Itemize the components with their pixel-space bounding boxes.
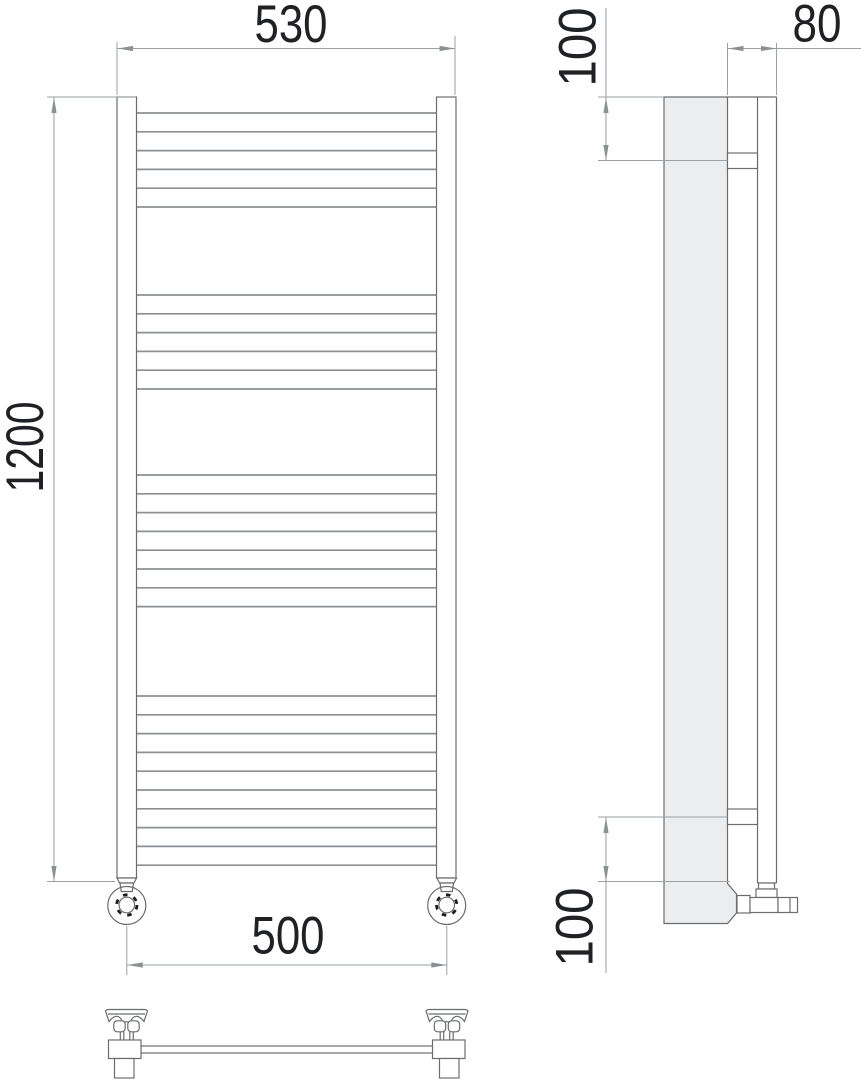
valve-ball-right [128,1021,139,1032]
collector-tube [141,1046,435,1053]
valve-body [750,898,778,913]
valve-ball-left [114,1021,125,1032]
arrow-down [51,866,56,882]
bottom-bracket [728,809,758,825]
dim-100-bottom-label: 100 [546,888,605,967]
arrow-up [51,98,56,114]
front-view [108,97,466,925]
valve-wheel-top [106,1010,148,1022]
technical-drawing: 530 1200 500 80 100 [0,0,861,1080]
arrow-up [603,98,608,114]
top-bracket [728,153,758,169]
valve-connector [737,896,750,914]
dim-1200-label: 1200 [0,402,55,493]
right-foot-valve [428,878,466,925]
left-post [117,97,137,878]
valve-assembly-left [106,1010,148,1079]
dim-100-top-label: 100 [549,8,608,87]
left-foot-valve [108,878,146,925]
dim-side-depth: 80 [728,0,861,95]
dim-front-width-bottom: 500 [127,907,447,976]
side-bottom-valve [737,883,798,913]
arrow-left [118,46,134,51]
side-panel [664,97,737,924]
valve-block [109,1040,142,1059]
valve-joint [756,889,777,898]
dim-front-height: 1200 [0,97,136,882]
right-post [437,97,457,878]
arrow-right [440,46,456,51]
arrow-right [761,46,777,51]
post-end-cap [117,878,137,883]
arrow-up [603,818,608,834]
arrow-left [728,46,744,51]
rung-lines [137,113,437,865]
dim-80-label: 80 [793,0,842,54]
valve-inner-circle [119,897,135,913]
arrow-right [431,962,447,967]
arrow-left [127,962,143,967]
valve-nut [759,883,775,889]
valve-handle [778,898,798,913]
dim-500-label: 500 [252,907,325,966]
arrow-down [603,866,608,882]
dim-530-label: 530 [255,0,328,54]
dim-front-width-top: 530 [117,0,455,95]
valve-tail [115,1059,135,1079]
side-view [664,97,798,924]
arrow-down [603,145,608,161]
bottom-view [106,1010,469,1079]
valve-assembly-right [426,1010,468,1079]
